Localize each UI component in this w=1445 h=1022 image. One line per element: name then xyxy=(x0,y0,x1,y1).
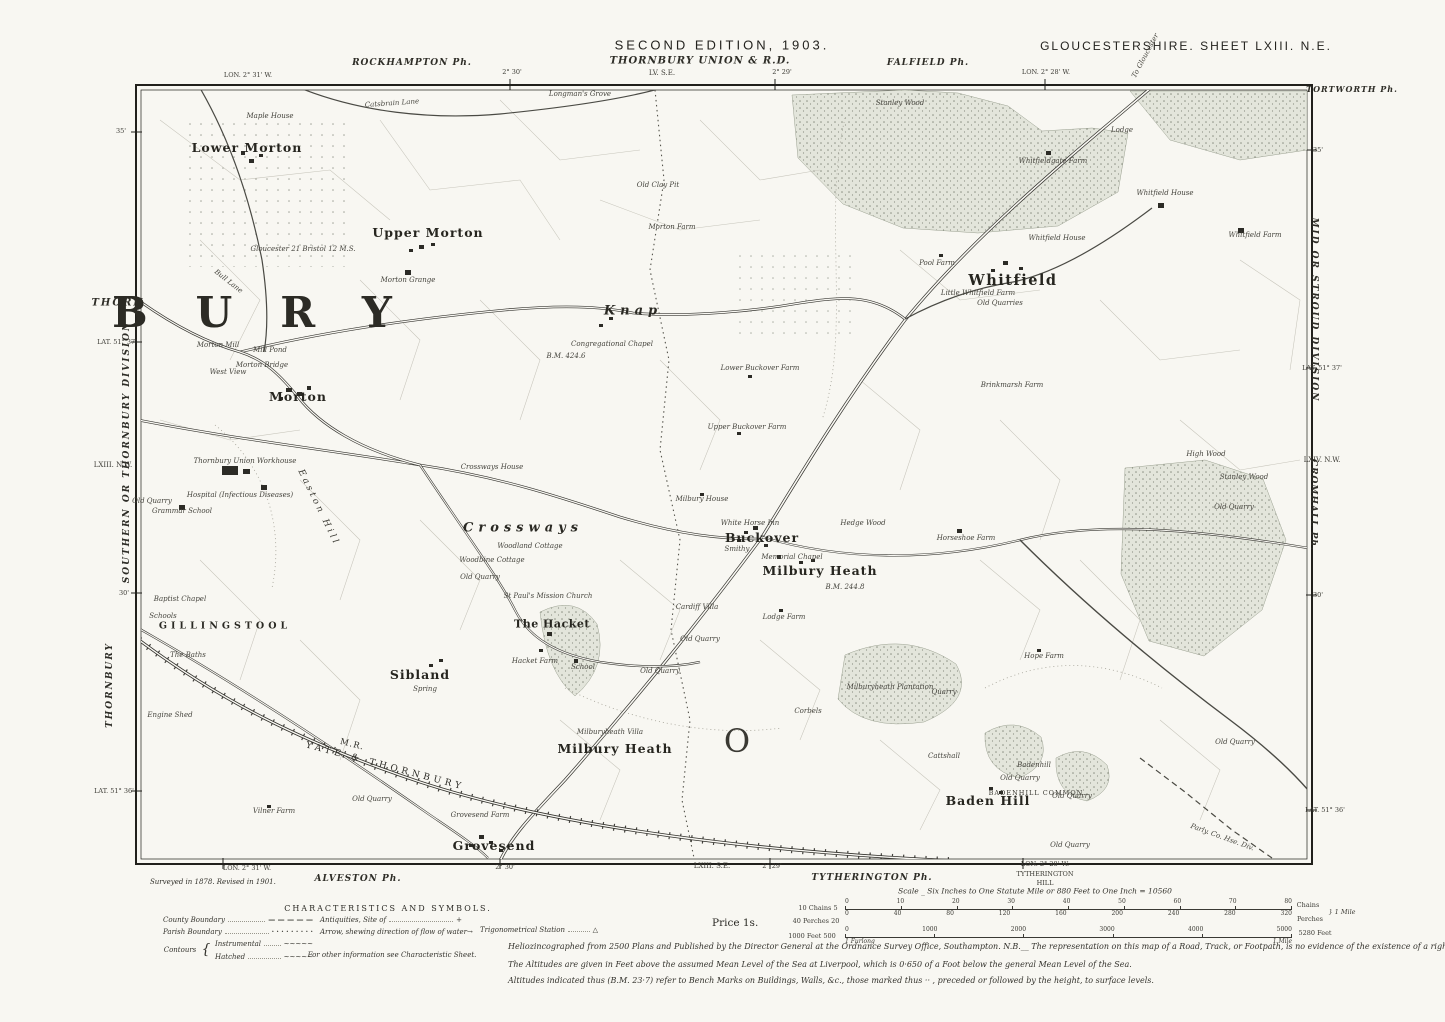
scale-tick-label: 4000 xyxy=(1188,926,1203,934)
scale-tick-label: 20 xyxy=(952,898,960,906)
map-label: Pool Farm xyxy=(919,260,955,268)
map-label: Lower Morton xyxy=(192,142,303,155)
map-label: Grovesend Farm xyxy=(451,812,510,820)
feet-tick-labels: 010002000300040005000 xyxy=(845,926,1292,934)
map-label: The Hacket xyxy=(514,619,590,630)
legend-trig-station: Trigonometrical Station △ xyxy=(480,926,598,934)
map-label: Old Quarry xyxy=(1052,793,1092,801)
water-flow-arrow-symbol: → xyxy=(467,928,473,936)
map-label: Old Quarry xyxy=(352,796,392,804)
scale-perches-left-label: 40 Perches 20 xyxy=(793,917,840,925)
latitude-tick-30-right: 30' xyxy=(1313,591,1323,599)
scale-tick-label: 0 xyxy=(845,898,849,906)
latitude-tick-35-left: 35' xyxy=(116,127,126,135)
legend-trig-label: Trigonometrical Station xyxy=(480,926,565,934)
map-label: Quarry xyxy=(931,689,956,697)
contour-instrumental-symbol: ~~~~~ xyxy=(284,940,313,948)
scale-tick-label: 3000 xyxy=(1099,926,1114,934)
map-label: Upper Buckover Farm xyxy=(708,424,787,432)
parish-falfield: FALFIELD Ph. xyxy=(887,58,969,68)
legend-contour-hatched: Hatched ~~~~~ xyxy=(215,953,313,961)
map-label: Knap xyxy=(604,305,662,318)
map-label: High Wood xyxy=(1186,451,1225,459)
edition-title: SECOND EDITION, 1903. xyxy=(615,38,830,53)
legend-leader xyxy=(228,921,265,922)
scale-bar-chains-perches: 01020304050607080 0408012016020024028032… xyxy=(845,898,1292,918)
map-label: Milburyheath Villa xyxy=(577,729,643,737)
legend-other-info: For other information see Characteristic… xyxy=(308,951,477,959)
longitude-right-bottom: LON. 2° 28' W. xyxy=(1021,860,1069,868)
legend-leader xyxy=(264,945,281,946)
parish-boundary-symbol: · · · · · · · · · xyxy=(272,928,313,936)
legend-parish-label: Parish Boundary xyxy=(163,928,222,936)
scale-tick-label: 40 xyxy=(894,910,902,918)
map-label: Stanley Wood xyxy=(876,100,924,108)
map-label: Congregational Chapel xyxy=(571,341,653,349)
scale-tick-label: 120 xyxy=(999,910,1010,918)
legend-antiquities-label: Antiquities, Site of xyxy=(320,916,386,924)
scale-tick-label: 0 xyxy=(845,910,849,918)
legend-leader xyxy=(389,921,453,922)
map-label: West View xyxy=(210,369,247,377)
map-label: Whitfield House xyxy=(1028,235,1085,243)
map-label: Old Quarries xyxy=(977,300,1023,308)
scale-tick-label: 240 xyxy=(1168,910,1179,918)
map-label: Hope Farm xyxy=(1024,653,1064,661)
map-label: Crossways House xyxy=(461,464,524,472)
scale-caption: Scale _ Six Inches to One Statute Mile o… xyxy=(898,887,1172,895)
union-label: THORNBURY UNION & R.D. xyxy=(610,56,791,67)
map-label: Lodge Farm xyxy=(763,614,806,622)
map-label: Lower Buckover Farm xyxy=(721,365,800,373)
map-label: Crossways xyxy=(463,522,583,535)
price-label: Price 1s. xyxy=(712,918,758,929)
map-label: Smithy xyxy=(725,546,750,554)
legend-instrumental-label: Instrumental xyxy=(215,940,261,948)
longitude-tick-229-bottom: 2° 29' xyxy=(762,862,782,870)
scale-tick-label: 1000 xyxy=(922,926,937,934)
legend-parish-boundary: Parish Boundary · · · · · · · · · xyxy=(163,928,313,936)
scale-tick-label: 70 xyxy=(1229,898,1237,906)
legend-arrow-label: Arrow, shewing direction of flow of wate… xyxy=(320,928,467,936)
longitude-left-top: LON. 2° 31' W. xyxy=(224,71,272,79)
map-label: Horseshoe Farm xyxy=(937,535,996,543)
map-label: Upper Morton xyxy=(372,227,483,240)
map-label: Whitfield xyxy=(968,274,1057,289)
map-label: Cardiff Villa xyxy=(676,604,719,612)
longitude-tick-229-top: 2° 29' xyxy=(772,68,792,76)
legend-leader xyxy=(248,958,281,959)
map-label: Grammar School xyxy=(152,508,212,516)
legend-contour-instrumental: Instrumental ~~~~~ xyxy=(215,940,313,948)
map-label: Hospital (Infectious Diseases) xyxy=(187,492,293,500)
map-label: Milburyheath Plantation xyxy=(847,684,934,692)
legend-title: CHARACTERISTICS AND SYMBOLS. xyxy=(284,905,492,913)
map-label: Morton xyxy=(269,391,327,404)
scale-tick-label: 5000 xyxy=(1277,926,1292,934)
antiquities-symbol: + xyxy=(456,916,462,924)
parish-cromhall: CROMHALL Ph. xyxy=(1308,459,1318,551)
map-label: Badenhill xyxy=(1017,762,1051,770)
map-label: Old Quarry xyxy=(640,668,680,676)
scale-tick-label: 60 xyxy=(1174,898,1182,906)
map-label: B.M. 244.8 xyxy=(825,584,864,592)
legend-county-boundary: County Boundary — — — — — xyxy=(163,916,313,924)
division-right: MID OR STROUD DIVISION xyxy=(1309,218,1319,403)
scale-tick-label: 320 xyxy=(1281,910,1292,918)
scale-mile-brace: } 1 Mile xyxy=(1328,908,1355,916)
perches-tick-labels: 04080120160200240280320 xyxy=(845,910,1292,918)
scale-feet-right-label: 5280 Feet xyxy=(1298,929,1331,937)
parish-tytherington: TYTHERINGTON Ph. xyxy=(811,873,932,883)
map-label: Whitfield House xyxy=(1136,190,1193,198)
map-label: Hedge Wood xyxy=(840,520,885,528)
survey-revision-note: Surveyed in 1878. Revised in 1901. xyxy=(150,878,276,887)
legend-leader xyxy=(568,931,590,932)
map-label: Corbels xyxy=(794,708,821,716)
map-label: Old Quarry xyxy=(132,498,172,506)
map-label: Longman's Grove xyxy=(549,91,611,99)
legend-hatched-label: Hatched xyxy=(215,953,245,961)
map-label: Gloucester 21 Bristol 12 M.S. xyxy=(251,246,356,254)
parish-rockhampton: ROCKHAMPTON Ph. xyxy=(352,58,472,68)
latitude-tick-30-left: 30' xyxy=(119,589,129,597)
map-label: Baden Hill xyxy=(946,795,1031,808)
map-label: O xyxy=(724,725,750,757)
adjoining-sheet-ref-bottom: LXIII. S.E. xyxy=(694,862,730,870)
scale-chains-left-label: 10 Chains 5 xyxy=(798,904,837,912)
legend-leader xyxy=(225,933,269,934)
latitude-36-right: LAT. 51° 36' xyxy=(1305,806,1345,814)
scale-tick-label: 80 xyxy=(946,910,954,918)
map-label: Sibland xyxy=(390,669,450,682)
longitude-left-bottom: LON. 2° 31' W. xyxy=(223,864,271,872)
map-label: Whitfieldgate Farm xyxy=(1019,158,1088,166)
map-label: Whitfield Farm xyxy=(1228,232,1281,240)
map-label: Milbury House xyxy=(676,496,729,504)
adjoining-sheet-ref-top: LV. S.E. xyxy=(649,69,675,77)
map-label: Spring xyxy=(413,686,437,694)
map-label: Old Quarry xyxy=(680,636,720,644)
scale-chains-unit: Chains xyxy=(1297,901,1320,909)
chains-tick-labels: 01020304050607080 xyxy=(845,898,1292,906)
latitude-tick-35-right: 35' xyxy=(1313,146,1323,154)
map-label: Lodge xyxy=(1111,127,1133,135)
scale-tick-label: 0 xyxy=(845,926,849,934)
map-label: Morton Grange xyxy=(381,277,436,285)
legend-contours-brace: { xyxy=(202,942,211,959)
map-label: Engine Shed xyxy=(147,712,192,720)
sheet-title: GLOUCESTERSHIRE. SHEET LXIII. N.E. xyxy=(1040,39,1332,53)
longitude-tick-230-top: 2° 30' xyxy=(502,68,522,76)
longitude-tick-230-bottom: 2° 30' xyxy=(495,863,515,871)
map-label: GILLINGSTOOL xyxy=(159,621,291,631)
latitude-36-left: LAT. 51° 36' xyxy=(94,787,134,795)
legend-county-label: County Boundary xyxy=(163,916,225,924)
map-label: Buckover xyxy=(725,532,799,545)
map-sheet: SECOND EDITION, 1903. GLOUCESTERSHIRE. S… xyxy=(0,0,1445,1022)
map-label: Hacket Farm xyxy=(512,658,558,666)
scale-tick-label: 30 xyxy=(1007,898,1015,906)
scale-tick-label: 200 xyxy=(1111,910,1122,918)
map-label: Old Quarry xyxy=(1050,842,1090,850)
map-label: Milbury Heath xyxy=(557,743,672,756)
map-label: Woodbine Cottage xyxy=(459,557,524,565)
latitude-37-right: LAT. 51° 37' xyxy=(1302,364,1342,372)
scale-tick-label: 160 xyxy=(1055,910,1066,918)
publication-note: Heliozincographed from 2500 Plans and Pu… xyxy=(508,942,1445,952)
map-label: The Baths xyxy=(170,652,206,660)
scale-tick-label: 40 xyxy=(1063,898,1071,906)
map-label: Baptist Chapel xyxy=(154,596,206,604)
parish-tortworth: TORTWORTH Ph. xyxy=(1306,84,1398,94)
map-label: Old Clay Pit xyxy=(637,182,679,190)
map-label: Grovesend xyxy=(453,840,536,853)
map-label: Milbury Heath xyxy=(762,565,877,578)
map-label: Maple House xyxy=(247,113,294,121)
legend-arrow: Arrow, shewing direction of flow of wate… xyxy=(320,928,478,936)
railway-line xyxy=(139,640,958,861)
scale-feet-left-label: 1000 Feet 500 xyxy=(788,932,836,940)
map-label: Mill Pond xyxy=(253,347,287,355)
map-label: Thornbury Union Workhouse xyxy=(194,458,297,466)
scale-tick-label: 280 xyxy=(1224,910,1235,918)
map-label: Old Quarry xyxy=(1215,739,1255,747)
map-label: Woodland Cottage xyxy=(497,543,562,551)
trig-station-symbol: △ xyxy=(593,926,598,934)
scale-tick-label: 2000 xyxy=(1011,926,1026,934)
placename-thornbury-margin: THORNBURY xyxy=(105,642,115,728)
map-label: B.M. 424.6 xyxy=(546,353,585,361)
longitude-right-top: LON. 2° 28' W. xyxy=(1022,68,1070,76)
map-label: Brinkmarsh Farm xyxy=(981,382,1044,390)
map-label: BURY xyxy=(112,292,440,334)
tytherington-hill-line1: TYTHERINGTON xyxy=(1016,870,1073,878)
scale-tick-label: 80 xyxy=(1284,898,1292,906)
map-label: Old Quarry xyxy=(460,574,500,582)
adjoining-sheet-ref-left: LXIII. N.W. xyxy=(94,461,132,469)
map-label: Old Quarry xyxy=(1214,504,1254,512)
map-label: White Horse Inn xyxy=(721,520,780,528)
map-label: Morton Farm xyxy=(648,224,695,232)
map-label: School xyxy=(571,664,595,672)
map-label: Stanley Wood xyxy=(1220,474,1268,482)
map-label: St Paul's Mission Church xyxy=(504,593,593,601)
map-label: Morton Mill xyxy=(197,342,239,350)
benchmarks-note: Altitudes indicated thus (B.M. 23·7) ref… xyxy=(508,976,1154,986)
parish-alveston: ALVESTON Ph. xyxy=(315,874,402,884)
map-label: Old Quarry xyxy=(1000,775,1040,783)
county-boundary-symbol: — — — — — xyxy=(268,916,313,924)
scale-perches-unit: Perches xyxy=(1297,915,1323,923)
map-label: Little Whitfield Farm xyxy=(941,290,1015,298)
scale-tick-label: 10 xyxy=(897,898,905,906)
altitudes-note: The Altitudes are given in Feet above th… xyxy=(508,960,1132,970)
legend-contours-label: Contours xyxy=(164,946,197,954)
legend-antiquities: Antiquities, Site of + xyxy=(320,916,462,924)
division-left: SOUTHERN OR THORNBURY DIVISION xyxy=(122,321,132,584)
scale-tick-label: 50 xyxy=(1118,898,1126,906)
map-label: Vilner Farm xyxy=(253,808,295,816)
map-label: Memorial Chapel xyxy=(761,554,822,562)
map-label: Cattshall xyxy=(928,753,960,761)
